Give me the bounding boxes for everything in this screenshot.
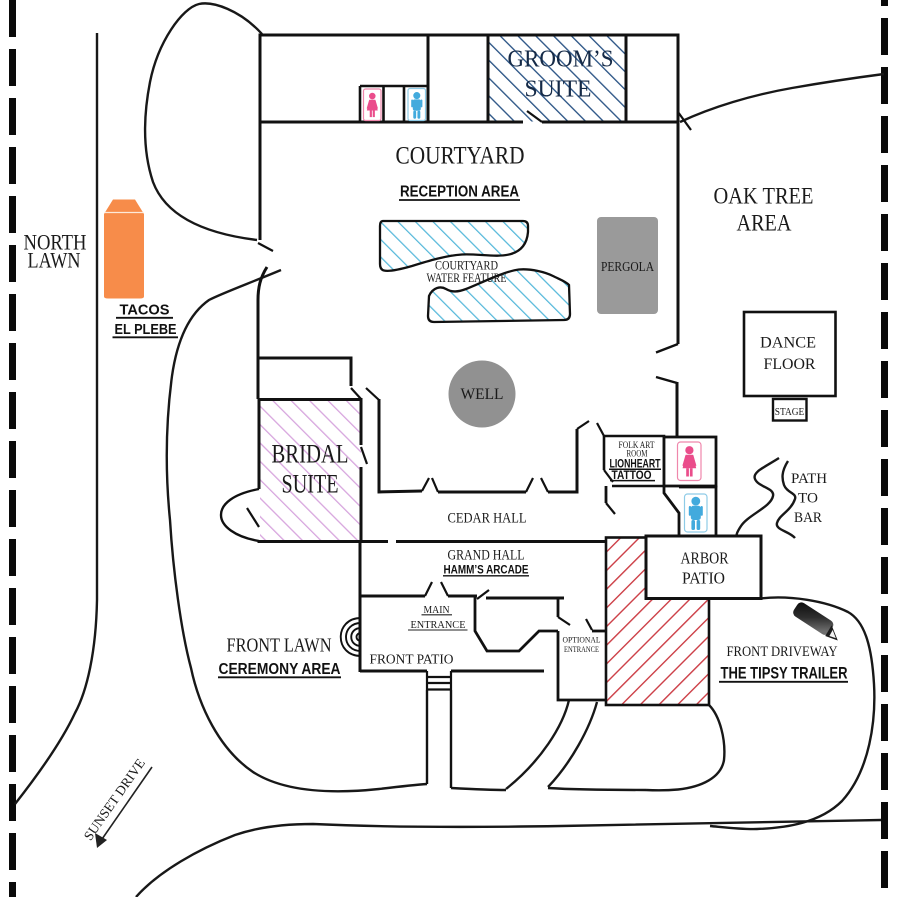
svg-text:TACOS: TACOS: [120, 302, 170, 319]
svg-text:CEDAR HALL: CEDAR HALL: [448, 511, 527, 527]
svg-text:AREA: AREA: [737, 211, 792, 236]
svg-text:WATER FEATURE: WATER FEATURE: [427, 270, 507, 285]
svg-text:PATIO: PATIO: [682, 569, 725, 588]
svg-text:OAK TREE: OAK TREE: [714, 184, 814, 209]
svg-text:MAIN: MAIN: [424, 605, 450, 616]
svg-text:LAWN: LAWN: [28, 248, 81, 273]
svg-text:RECEPTION AREA: RECEPTION AREA: [400, 184, 519, 201]
svg-text:CEREMONY AREA: CEREMONY AREA: [219, 661, 341, 678]
svg-text:ARBOR: ARBOR: [681, 549, 730, 568]
svg-text:ENTRANCE: ENTRANCE: [411, 620, 466, 631]
svg-text:PERGOLA: PERGOLA: [601, 260, 655, 275]
svg-text:SUITE: SUITE: [282, 470, 339, 499]
svg-text:HAMM’S ARCADE: HAMM’S ARCADE: [444, 563, 529, 577]
svg-text:FLOOR: FLOOR: [764, 356, 817, 373]
svg-text:SUNSET DRIVE: SUNSET DRIVE: [81, 756, 148, 843]
svg-text:DANCE: DANCE: [760, 335, 816, 352]
svg-text:SUITE: SUITE: [525, 77, 592, 103]
svg-text:WELL: WELL: [461, 386, 504, 403]
svg-text:BRIDAL: BRIDAL: [272, 440, 349, 469]
svg-text:STAGE: STAGE: [775, 406, 805, 418]
svg-text:BAR: BAR: [794, 510, 822, 526]
svg-text:GROOM’S: GROOM’S: [508, 47, 614, 73]
svg-text:FRONT LAWN: FRONT LAWN: [227, 635, 332, 657]
svg-text:THE TIPSY TRAILER: THE TIPSY TRAILER: [721, 665, 848, 683]
svg-text:FRONT PATIO: FRONT PATIO: [370, 652, 454, 667]
svg-text:COURTYARD: COURTYARD: [396, 143, 525, 170]
svg-text:FRONT DRIVEWAY: FRONT DRIVEWAY: [727, 644, 838, 660]
svg-text:GRAND HALL: GRAND HALL: [448, 548, 525, 564]
svg-text:ENTRANCE: ENTRANCE: [564, 644, 599, 654]
svg-text:TO: TO: [798, 491, 818, 507]
svg-text:PATH: PATH: [791, 471, 828, 487]
svg-text:EL PLEBE: EL PLEBE: [115, 321, 177, 338]
